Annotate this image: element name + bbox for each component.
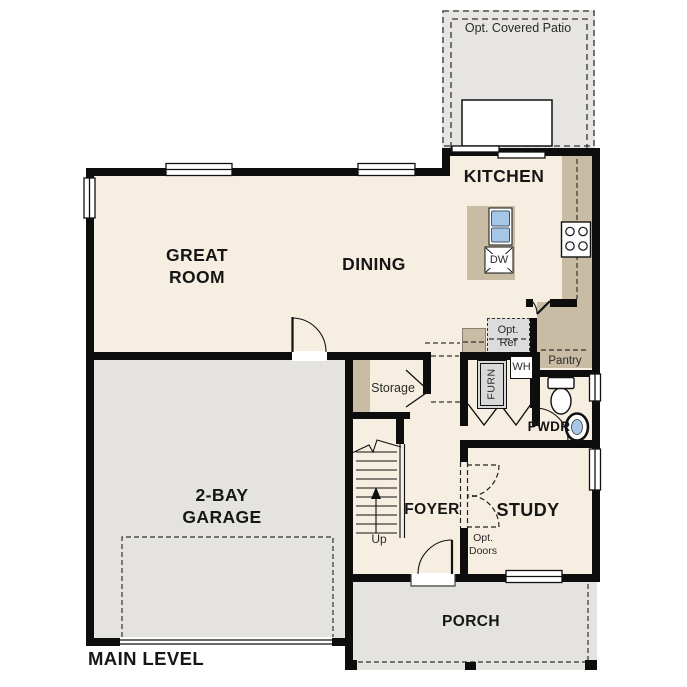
pantry-label: Pantry xyxy=(548,354,581,368)
porch-post-left xyxy=(345,660,357,670)
dashed-lines xyxy=(122,159,589,662)
garage-label: 2-BAY GARAGE xyxy=(174,485,270,529)
patio-label: Opt. Covered Patio xyxy=(465,21,571,37)
porch-label: PORCH xyxy=(442,612,500,631)
opt-ref-label: Opt. Ref xyxy=(494,324,522,350)
opt-doors-label: Opt. Doors xyxy=(465,532,501,557)
porch-post-right xyxy=(585,660,597,670)
furnace-label: FURN xyxy=(485,368,498,399)
garage-door-area-dash xyxy=(122,537,333,637)
plan-linework xyxy=(0,0,687,687)
stove xyxy=(562,222,591,257)
stair-break-line xyxy=(352,440,401,453)
front-door-opening xyxy=(411,573,455,585)
staircase xyxy=(352,440,405,538)
island-sink xyxy=(489,208,512,245)
window-study-bottom xyxy=(506,571,562,583)
water-heater-label: WH xyxy=(512,361,530,375)
floor-plan: Opt. Covered Patio KITCHEN GREAT ROOM DI… xyxy=(0,0,687,687)
window-study-right xyxy=(590,449,601,490)
garage-entry-door xyxy=(293,317,327,352)
toilet xyxy=(548,378,574,415)
front-door xyxy=(418,540,452,574)
great-room-label: GREAT ROOM xyxy=(155,245,239,289)
window-powder-right xyxy=(590,374,601,401)
foyer-label: FOYER xyxy=(404,500,459,519)
patio-stoop xyxy=(462,100,552,146)
window-great-room-top-1 xyxy=(166,164,232,176)
up-label: Up xyxy=(371,532,386,547)
pantry-door xyxy=(532,301,550,314)
dining-label: DINING xyxy=(342,254,406,276)
garage-entry-opening xyxy=(292,351,327,361)
kitchen-label: KITCHEN xyxy=(464,166,545,188)
dishwasher-label: DW xyxy=(489,254,509,268)
window-dining-top xyxy=(358,164,415,176)
sliding-patio-door xyxy=(452,146,545,158)
stair-up-arrow-head xyxy=(371,487,381,499)
main-level-title: MAIN LEVEL xyxy=(88,647,204,670)
study-label: STUDY xyxy=(496,499,559,522)
porch-post-middle xyxy=(465,662,476,670)
powder-label: PWDR xyxy=(528,419,571,436)
storage-label: Storage xyxy=(371,381,415,397)
garage-door-opening xyxy=(120,637,332,647)
window-great-room-left xyxy=(84,178,95,218)
